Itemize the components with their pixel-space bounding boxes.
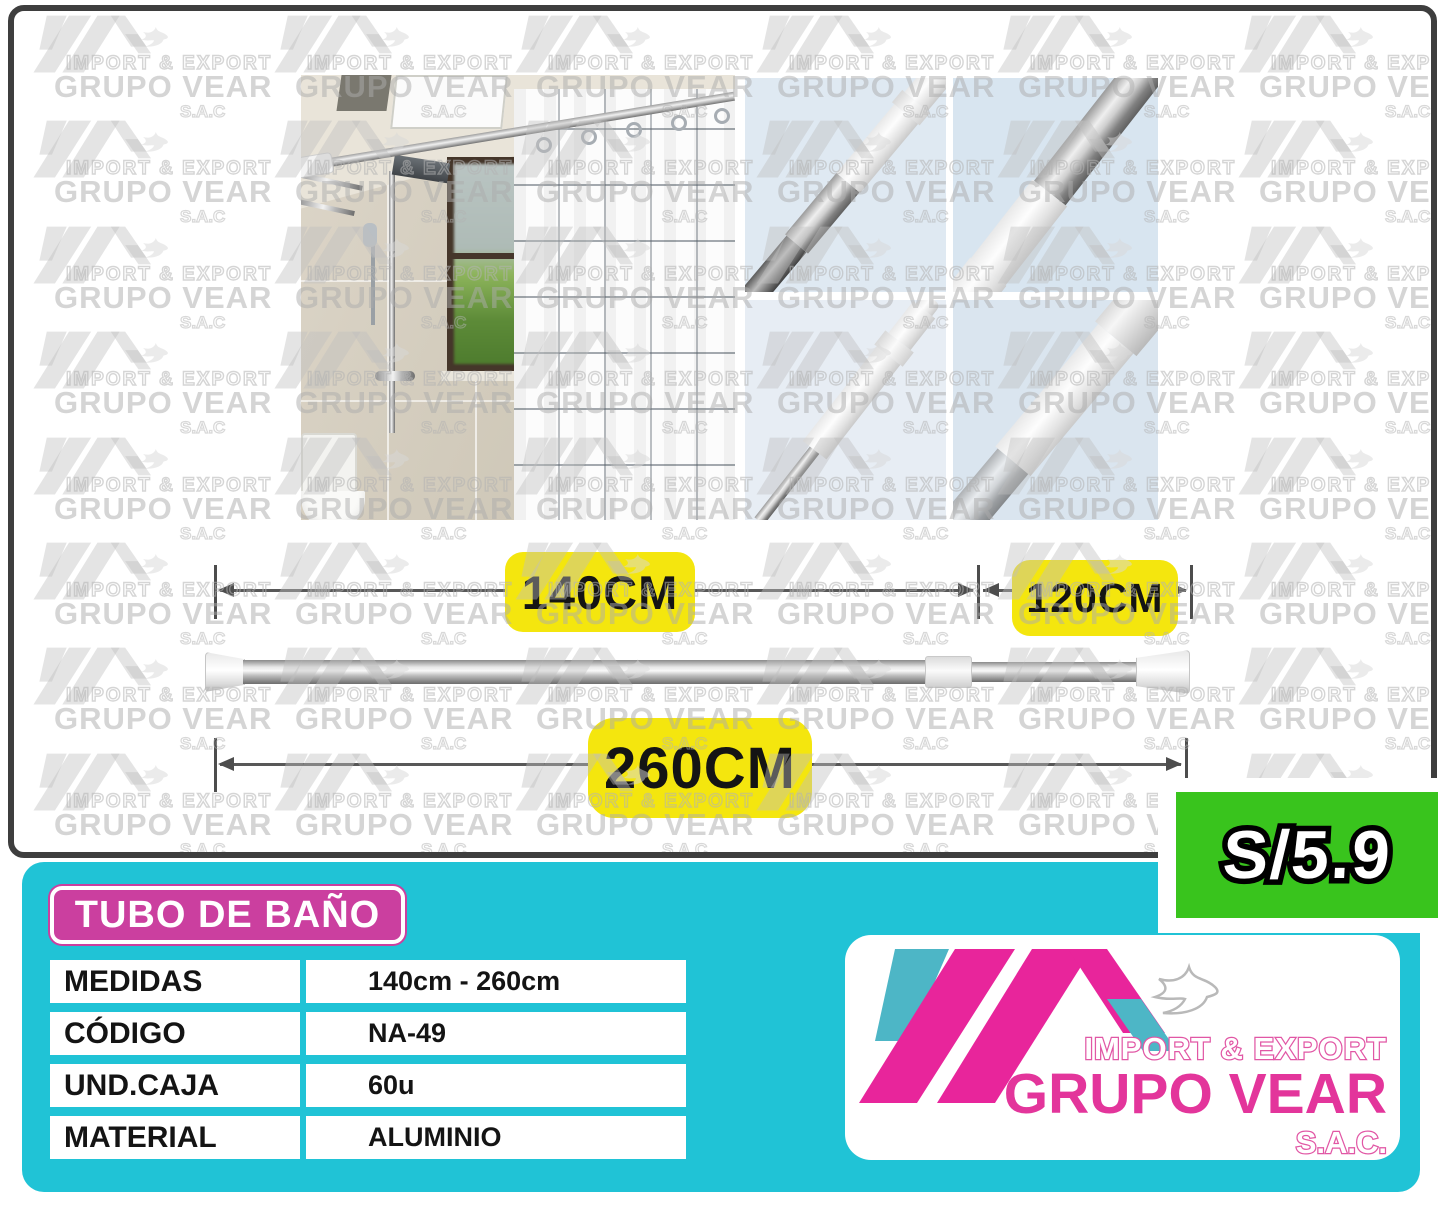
watermark-name: GRUPO VEAR: [54, 491, 284, 527]
watermark-brand-mark: [1237, 538, 1359, 606]
arrowhead-left: [983, 583, 999, 597]
watermark-brand-mark: [32, 327, 154, 395]
price-badge-backing: S/5.9: [1158, 778, 1445, 933]
watermark-suffix: S.A.C: [1385, 313, 1430, 333]
watermark-tile: IMPORT & EXPORT GRUPO VEAR S.A.C: [249, 850, 490, 858]
watermark-brand-mark: [32, 11, 154, 79]
watermark-brand-mark: [996, 749, 1118, 817]
watermark-import-export: IMPORT & EXPORT: [1271, 475, 1437, 497]
flyer-canvas: 140CM 120CM 260CM IMPORT & EXPORT GRUPO …: [0, 0, 1445, 1211]
watermark-suffix: S.A.C: [180, 102, 225, 122]
rod-segment: [995, 324, 1133, 476]
watermark-import-export: IMPORT & EXPORT: [66, 53, 256, 75]
rod-segment: [1034, 78, 1158, 205]
product-collage: 140CM 120CM 260CM IMPORT & EXPORT GRUPO …: [8, 5, 1437, 858]
shower-valve: [375, 371, 415, 381]
watermark-tile: IMPORT & EXPORT GRUPO VEAR S.A.C: [1213, 534, 1437, 639]
dimension-label-140: 140CM: [505, 552, 695, 632]
rod-closeup: [745, 78, 946, 292]
watermark-name: GRUPO VEAR: [1259, 596, 1437, 632]
watermark-import-export: IMPORT & EXPORT: [66, 791, 256, 813]
watermark-import-export: IMPORT & EXPORT: [548, 53, 738, 75]
watermark-name: GRUPO VEAR: [54, 174, 284, 210]
watermark-dove-icon: [859, 21, 897, 49]
dove-icon: [1145, 953, 1229, 1019]
watermark-tile: IMPORT & EXPORT GRUPO VEAR S.A.C: [1213, 218, 1437, 323]
watermark-import-export: IMPORT & EXPORT: [307, 685, 497, 707]
watermark-dove-icon: [1341, 548, 1379, 576]
watermark-dove-icon: [136, 337, 174, 365]
rod-diagram-cap-right: [1136, 650, 1190, 694]
rod-closeup-tile-3: [745, 300, 946, 520]
watermark-name: GRUPO VEAR: [295, 807, 525, 843]
watermark-import-export: IMPORT & EXPORT: [1271, 369, 1437, 391]
watermark-suffix: S.A.C: [662, 629, 707, 649]
watermark-suffix: S.A.C: [1385, 102, 1430, 122]
watermark-suffix: S.A.C: [1385, 734, 1430, 754]
watermark-name: GRUPO VEAR: [295, 701, 525, 737]
rod-segment: [836, 104, 918, 193]
watermark-dove-icon: [136, 443, 174, 471]
rod-closeup: [953, 300, 1158, 520]
watermark-brand-mark: [996, 854, 1118, 858]
bathroom-photo: [301, 75, 735, 520]
watermark-suffix: S.A.C: [903, 734, 948, 754]
watermark-suffix: S.A.C: [1144, 524, 1189, 544]
curtain-hook: [581, 129, 597, 145]
watermark-name: GRUPO VEAR: [1259, 701, 1437, 737]
watermark-dove-icon: [136, 21, 174, 49]
watermark-brand-mark: [1237, 222, 1359, 290]
rod-diagram-tube-thin: [972, 662, 1136, 682]
rod-segment: [754, 446, 819, 520]
spec-value: NA-49: [306, 1012, 686, 1055]
watermark-name: GRUPO VEAR: [54, 280, 284, 316]
watermark-suffix: S.A.C: [662, 524, 707, 544]
hand-shower-hose: [371, 235, 375, 325]
watermark-dove-icon: [1341, 232, 1379, 260]
watermark-suffix: S.A.C: [421, 840, 466, 858]
watermark-dove-icon: [1100, 21, 1138, 49]
watermark-import-export: IMPORT & EXPORT: [66, 158, 256, 180]
watermark-brand-mark: [273, 749, 395, 817]
watermark-tile: IMPORT & EXPORT GRUPO VEAR S.A.C: [8, 850, 249, 858]
watermark-import-export: IMPORT & EXPORT: [307, 791, 497, 813]
watermark-name: GRUPO VEAR: [777, 807, 1007, 843]
curtain-hook: [536, 137, 552, 153]
rod-closeup-tile-2: [953, 78, 1158, 292]
watermark-suffix: S.A.C: [180, 524, 225, 544]
watermark-suffix: S.A.C: [180, 207, 225, 227]
arrowhead-left: [218, 583, 234, 597]
watermark-tile: IMPORT & EXPORT GRUPO VEAR S.A.C: [8, 534, 249, 639]
watermark-brand-mark: [1237, 643, 1359, 711]
spec-label: CÓDIGO: [50, 1012, 300, 1055]
dimension-label-260: 260CM: [588, 718, 812, 818]
watermark-brand-mark: [514, 11, 636, 79]
watermark-name: GRUPO VEAR: [1259, 491, 1437, 527]
rod-diagram-cap-left: [205, 652, 245, 692]
watermark-brand-mark: [32, 854, 154, 858]
watermark-import-export: IMPORT & EXPORT: [1271, 53, 1437, 75]
watermark-suffix: S.A.C: [180, 313, 225, 333]
watermark-name: GRUPO VEAR: [777, 701, 1007, 737]
watermark-dove-icon: [859, 548, 897, 576]
rod-segment: [785, 173, 859, 254]
dimension-label-120: 120CM: [1012, 560, 1178, 636]
watermark-tile: IMPORT & EXPORT GRUPO VEAR S.A.C: [1213, 323, 1437, 428]
watermark-dove-icon: [1341, 337, 1379, 365]
watermark-suffix: S.A.C: [180, 734, 225, 754]
watermark-name: GRUPO VEAR: [1259, 385, 1437, 421]
watermark-dove-icon: [1341, 126, 1379, 154]
watermark-dove-icon: [136, 759, 174, 787]
watermark-suffix: S.A.C: [903, 629, 948, 649]
watermark-import-export: IMPORT & EXPORT: [789, 791, 979, 813]
watermark-tile: IMPORT & EXPORT GRUPO VEAR S.A.C: [1213, 639, 1437, 744]
watermark-tile: IMPORT & EXPORT GRUPO VEAR S.A.C: [8, 745, 249, 850]
price-badge: S/5.9: [1176, 792, 1438, 918]
watermark-tile: IMPORT & EXPORT GRUPO VEAR S.A.C: [8, 323, 249, 428]
watermark-brand-mark: [32, 749, 154, 817]
watermark-import-export: IMPORT & EXPORT: [66, 685, 256, 707]
watermark-import-export: IMPORT & EXPORT: [66, 369, 256, 391]
brand-suffix: S.A.C.: [995, 1125, 1387, 1160]
curtain-hook: [714, 108, 730, 124]
watermark-name: GRUPO VEAR: [54, 596, 284, 632]
spec-label: MEDIDAS: [50, 960, 300, 1003]
watermark-suffix: S.A.C: [903, 840, 948, 858]
watermark-import-export: IMPORT & EXPORT: [548, 685, 738, 707]
watermark-dove-icon: [377, 21, 415, 49]
watermark-dove-icon: [1341, 21, 1379, 49]
watermark-tile: IMPORT & EXPORT GRUPO VEAR S.A.C: [1213, 429, 1437, 534]
watermark-tile: IMPORT & EXPORT GRUPO VEAR S.A.C: [8, 7, 249, 112]
watermark-import-export: IMPORT & EXPORT: [1030, 685, 1220, 707]
watermark-dove-icon: [618, 21, 656, 49]
dim-tick-total-left: [214, 738, 217, 792]
watermark-name: GRUPO VEAR: [54, 807, 284, 843]
watermark-import-export: IMPORT & EXPORT: [1271, 158, 1437, 180]
watermark-tile: IMPORT & EXPORT GRUPO VEAR S.A.C: [1213, 112, 1437, 217]
watermark-tile: IMPORT & EXPORT GRUPO VEAR S.A.C: [8, 218, 249, 323]
price-text: S/5.9: [1221, 816, 1394, 894]
watermark-tile: IMPORT & EXPORT GRUPO VEAR S.A.C: [8, 112, 249, 217]
brand-name: GRUPO VEAR: [995, 1061, 1387, 1127]
dim-tick-left: [214, 565, 217, 619]
watermark-suffix: S.A.C: [1385, 207, 1430, 227]
watermark-brand-mark: [273, 11, 395, 79]
watermark-import-export: IMPORT & EXPORT: [1271, 580, 1437, 602]
watermark-brand-mark: [514, 854, 636, 858]
watermark-suffix: S.A.C: [1385, 629, 1430, 649]
watermark-tile: IMPORT & EXPORT GRUPO VEAR S.A.C: [249, 745, 490, 850]
spec-value: 140cm - 260cm: [306, 960, 686, 1003]
watermark-brand-mark: [1237, 433, 1359, 501]
rod-diagram-collar: [925, 656, 972, 688]
rod-closeup: [953, 78, 1158, 292]
watermark-dove-icon: [1341, 653, 1379, 681]
watermark-brand-mark: [1237, 116, 1359, 184]
watermark-brand-mark: [755, 854, 877, 858]
spec-value: ALUMINIO: [306, 1116, 686, 1159]
rod-closeup-tile-4: [953, 300, 1158, 520]
dim-tick-mid: [977, 565, 980, 619]
watermark-suffix: S.A.C: [421, 734, 466, 754]
watermark-brand-mark: [755, 11, 877, 79]
watermark-dove-icon: [136, 548, 174, 576]
watermark-suffix: S.A.C: [662, 840, 707, 858]
watermark-import-export: IMPORT & EXPORT: [789, 685, 979, 707]
watermark-tile: IMPORT & EXPORT GRUPO VEAR S.A.C: [490, 850, 731, 858]
watermark-suffix: S.A.C: [1385, 524, 1430, 544]
watermark-name: GRUPO VEAR: [1259, 69, 1437, 105]
watermark-name: GRUPO VEAR: [777, 596, 1007, 632]
arrowhead-right: [958, 583, 974, 597]
watermark-suffix: S.A.C: [1144, 734, 1189, 754]
watermark-dove-icon: [377, 548, 415, 576]
spec-label: MATERIAL: [50, 1116, 300, 1159]
watermark-brand-mark: [32, 643, 154, 711]
watermark-import-export: IMPORT & EXPORT: [1271, 685, 1437, 707]
watermark-import-export: IMPORT & EXPORT: [1030, 53, 1220, 75]
watermark-tile: IMPORT & EXPORT GRUPO VEAR S.A.C: [731, 850, 972, 858]
watermark-tile: IMPORT & EXPORT GRUPO VEAR S.A.C: [731, 534, 972, 639]
watermark-tile: IMPORT & EXPORT GRUPO VEAR S.A.C: [249, 534, 490, 639]
watermark-import-export: IMPORT & EXPORT: [789, 53, 979, 75]
watermark-tile: IMPORT & EXPORT GRUPO VEAR S.A.C: [249, 639, 490, 744]
hand-shower-head: [363, 223, 377, 247]
watermark-brand-mark: [32, 222, 154, 290]
arrowhead-right: [1166, 757, 1182, 771]
watermark-brand-mark: [32, 116, 154, 184]
brand-logo-card: IMPORT & EXPORT GRUPO VEAR S.A.C.: [845, 935, 1400, 1160]
watermark-brand-mark: [996, 11, 1118, 79]
watermark-brand-mark: [32, 433, 154, 501]
watermark-tile: IMPORT & EXPORT GRUPO VEAR S.A.C: [8, 429, 249, 534]
watermark-import-export: IMPORT & EXPORT: [66, 475, 256, 497]
watermark-brand-mark: [273, 538, 395, 606]
shower-pipe: [389, 171, 395, 433]
rod-closeup-tile-1: [745, 78, 946, 292]
rod-segment: [802, 346, 900, 459]
watermark-suffix: S.A.C: [180, 840, 225, 858]
watermark-brand-mark: [1237, 327, 1359, 395]
watermark-dove-icon: [136, 126, 174, 154]
spec-label: UND.CAJA: [50, 1064, 300, 1107]
curtain-hook: [671, 115, 687, 131]
ceiling-vent: [336, 75, 391, 111]
toilet-tank: [301, 433, 357, 495]
watermark-name: GRUPO VEAR: [54, 385, 284, 421]
watermark-dove-icon: [136, 653, 174, 681]
shower-curtain: [514, 89, 735, 520]
watermark-suffix: S.A.C: [421, 524, 466, 544]
watermark-brand-mark: [755, 538, 877, 606]
watermark-name: GRUPO VEAR: [54, 701, 284, 737]
dim-tick-right: [1190, 565, 1193, 619]
watermark-import-export: IMPORT & EXPORT: [307, 53, 497, 75]
watermark-suffix: S.A.C: [180, 418, 225, 438]
watermark-name: GRUPO VEAR: [1259, 280, 1437, 316]
watermark-name: GRUPO VEAR: [54, 69, 284, 105]
product-title-badge: TUBO DE BAÑO: [50, 886, 405, 944]
rod-diagram-tube-main: [243, 660, 925, 684]
watermark-suffix: S.A.C: [1385, 418, 1430, 438]
toilet-bowl: [301, 491, 365, 520]
watermark-name: GRUPO VEAR: [1018, 701, 1248, 737]
watermark-suffix: S.A.C: [903, 524, 948, 544]
watermark-suffix: S.A.C: [421, 629, 466, 649]
watermark-suffix: S.A.C: [180, 629, 225, 649]
watermark-brand-mark: [1237, 11, 1359, 79]
watermark-brand-mark: [273, 854, 395, 858]
watermark-dove-icon: [1341, 443, 1379, 471]
spec-value: 60u: [306, 1064, 686, 1107]
rod-closeup: [745, 300, 946, 520]
curtain-hook: [626, 122, 642, 138]
ceiling-light: [390, 75, 508, 129]
watermark-name: GRUPO VEAR: [295, 596, 525, 632]
watermark-dove-icon: [136, 232, 174, 260]
watermark-tile: IMPORT & EXPORT GRUPO VEAR S.A.C: [1213, 7, 1437, 112]
watermark-import-export: IMPORT & EXPORT: [66, 264, 256, 286]
watermark-name: GRUPO VEAR: [1259, 174, 1437, 210]
watermark-brand-mark: [32, 538, 154, 606]
watermark-import-export: IMPORT & EXPORT: [1271, 264, 1437, 286]
arrowhead-left: [218, 757, 234, 771]
